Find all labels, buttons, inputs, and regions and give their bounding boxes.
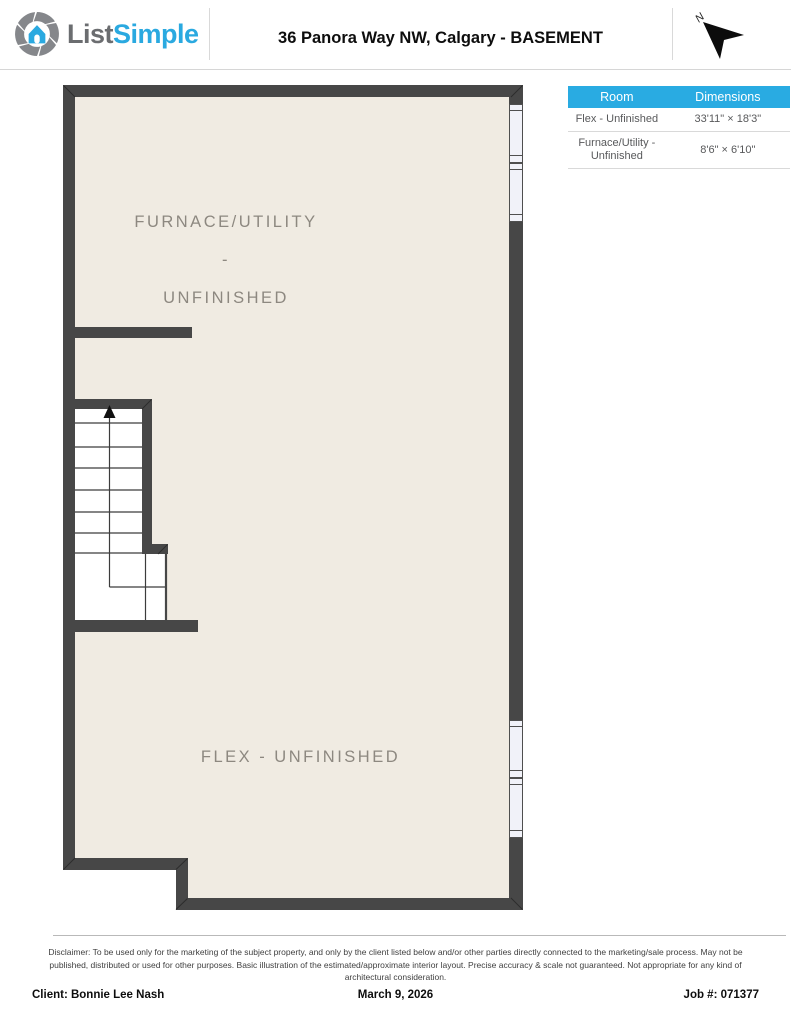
room-name: Flex - Unfinished bbox=[568, 108, 666, 132]
stair-up-arrow-icon bbox=[104, 405, 116, 418]
table-header-row: Room Dimensions bbox=[568, 86, 790, 108]
window bbox=[509, 104, 523, 163]
window bbox=[509, 778, 523, 838]
aperture-house-icon bbox=[14, 11, 60, 57]
footer: Client: Bonnie Lee Nash March 9, 2026 Jo… bbox=[0, 989, 791, 1001]
room-label-flex: FLEX - UNFINISHED bbox=[193, 748, 408, 767]
table-row: Furnace/Utility - Unfinished 8'6" × 6'10… bbox=[568, 132, 790, 169]
footer-rule bbox=[53, 935, 786, 936]
header-rule bbox=[0, 69, 791, 70]
footer-job-number: Job #: 071377 bbox=[517, 989, 759, 1001]
footer-client: Client: Bonnie Lee Nash bbox=[32, 989, 274, 1001]
logo-wordmark: ListSimple bbox=[67, 19, 199, 50]
room-dimensions: 33'11" × 18'3" bbox=[666, 108, 790, 132]
disclaimer-text: Disclaimer: To be used only for the mark… bbox=[45, 946, 746, 984]
window bbox=[509, 163, 523, 222]
floorplan: FURNACE/UTILITY - UNFINISHED FLEX - UNFI… bbox=[63, 85, 523, 910]
listsimple-logo: ListSimple bbox=[14, 11, 199, 57]
table-row: Flex - Unfinished 33'11" × 18'3" bbox=[568, 108, 790, 132]
footer-date: March 9, 2026 bbox=[274, 989, 516, 1001]
window bbox=[509, 720, 523, 778]
room-dimensions-table: Room Dimensions Flex - Unfinished 33'11"… bbox=[568, 86, 790, 169]
room-dimensions: 8'6" × 6'10" bbox=[666, 132, 790, 169]
header-divider-right bbox=[672, 8, 673, 60]
column-header-room: Room bbox=[568, 86, 666, 108]
north-arrow-icon: N bbox=[686, 2, 752, 69]
page-title: 36 Panora Way NW, Calgary - BASEMENT bbox=[209, 29, 672, 48]
column-header-dimensions: Dimensions bbox=[666, 86, 790, 108]
room-name: Furnace/Utility - Unfinished bbox=[568, 132, 666, 169]
room-label-furnace-utility: FURNACE/UTILITY - UNFINISHED bbox=[131, 203, 321, 317]
